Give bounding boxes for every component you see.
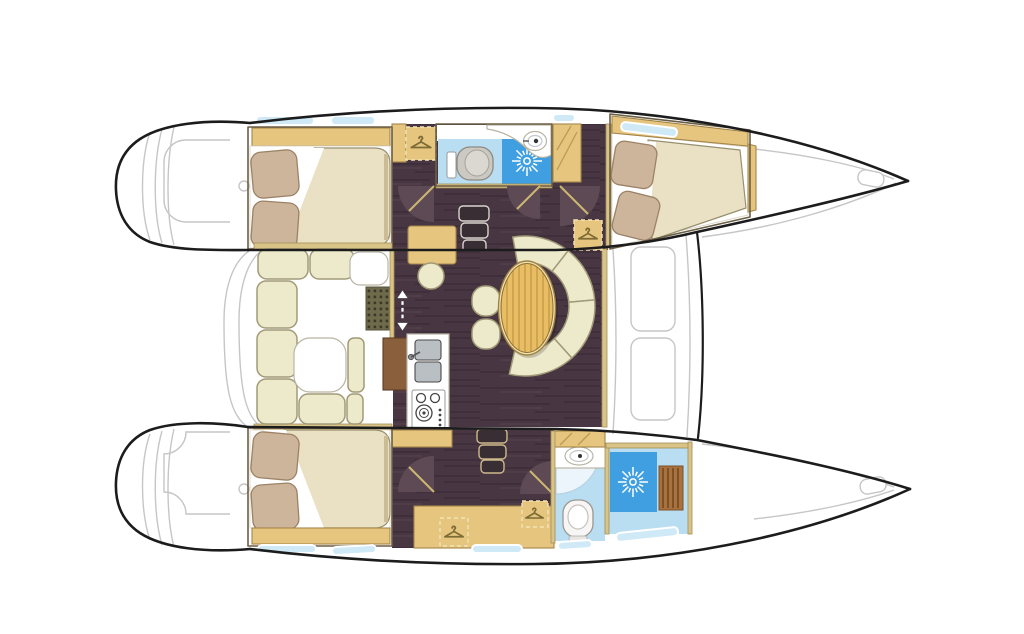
hull-window bbox=[553, 114, 575, 122]
floor-grate bbox=[366, 287, 392, 330]
hull-window bbox=[332, 545, 376, 555]
salon bbox=[383, 220, 607, 430]
knob bbox=[439, 414, 442, 417]
head-bottom bbox=[551, 431, 606, 550]
wall bbox=[606, 443, 692, 448]
head-top bbox=[436, 124, 552, 188]
knob bbox=[439, 409, 442, 412]
drain bbox=[534, 139, 538, 143]
pillow bbox=[250, 431, 300, 481]
cockpit-table bbox=[294, 338, 346, 392]
dining-stool bbox=[472, 286, 500, 316]
companionway-steps-top bbox=[459, 206, 489, 254]
drain bbox=[578, 454, 582, 458]
galley-sink bbox=[415, 340, 441, 360]
dining-stool bbox=[472, 319, 500, 349]
top-hull-interior bbox=[248, 114, 756, 254]
galley-counter bbox=[383, 338, 407, 390]
wall bbox=[688, 442, 692, 534]
wall bbox=[551, 431, 555, 543]
cockpit-settee-cushion bbox=[258, 249, 308, 279]
shelf-band bbox=[252, 528, 390, 544]
wall bbox=[605, 444, 609, 534]
cockpit-bench-seat bbox=[350, 252, 388, 285]
hull-window bbox=[331, 116, 375, 125]
nav-stool bbox=[418, 263, 444, 289]
shelf bbox=[392, 124, 406, 162]
knob bbox=[439, 419, 442, 422]
catamaran-floor-plan bbox=[0, 0, 1024, 634]
toilet-tank bbox=[447, 152, 456, 178]
nav-desk bbox=[408, 226, 456, 264]
aft-cabin-bottom bbox=[248, 428, 392, 546]
aft-cabin-top bbox=[248, 127, 392, 250]
pillow bbox=[610, 140, 658, 190]
wall bbox=[390, 250, 394, 338]
wardrobe-locker bbox=[574, 220, 602, 250]
pillow bbox=[250, 482, 299, 531]
cockpit-settee-cushion bbox=[257, 281, 297, 328]
wall bbox=[254, 243, 392, 249]
shower bbox=[610, 452, 657, 512]
cockpit-settee-cushion bbox=[348, 338, 364, 392]
cockpit-settee-cushion bbox=[299, 394, 345, 424]
bottom-hull-interior bbox=[248, 428, 692, 553]
cockpit-settee-cushion bbox=[257, 379, 297, 424]
wardrobe-locker bbox=[522, 501, 548, 527]
floor-plan-page bbox=[0, 0, 1024, 634]
cockpit-settee-cushion bbox=[310, 249, 354, 279]
wardrobe-locker bbox=[406, 127, 436, 160]
knob bbox=[439, 424, 442, 427]
hull-window bbox=[472, 545, 522, 553]
foredeck-hatch bbox=[631, 247, 675, 331]
cockpit-settee-cushion bbox=[257, 330, 297, 377]
foredeck-hatch bbox=[631, 338, 675, 420]
wardrobe-locker bbox=[440, 518, 468, 546]
galley-sink bbox=[415, 362, 441, 382]
dining-table bbox=[501, 264, 553, 353]
toilet-lid bbox=[465, 150, 489, 176]
shower-room-bottom bbox=[605, 442, 692, 542]
pillow bbox=[250, 200, 299, 249]
cockpit-settee-cushion bbox=[347, 394, 363, 424]
pillow bbox=[250, 149, 300, 199]
locker bbox=[392, 430, 452, 447]
shelf-band bbox=[252, 128, 390, 146]
toilet-seat bbox=[568, 505, 588, 529]
companionway-steps-bottom bbox=[477, 429, 507, 473]
hull-window bbox=[558, 540, 592, 550]
wall bbox=[602, 249, 607, 427]
cabinet-top bbox=[553, 124, 581, 182]
